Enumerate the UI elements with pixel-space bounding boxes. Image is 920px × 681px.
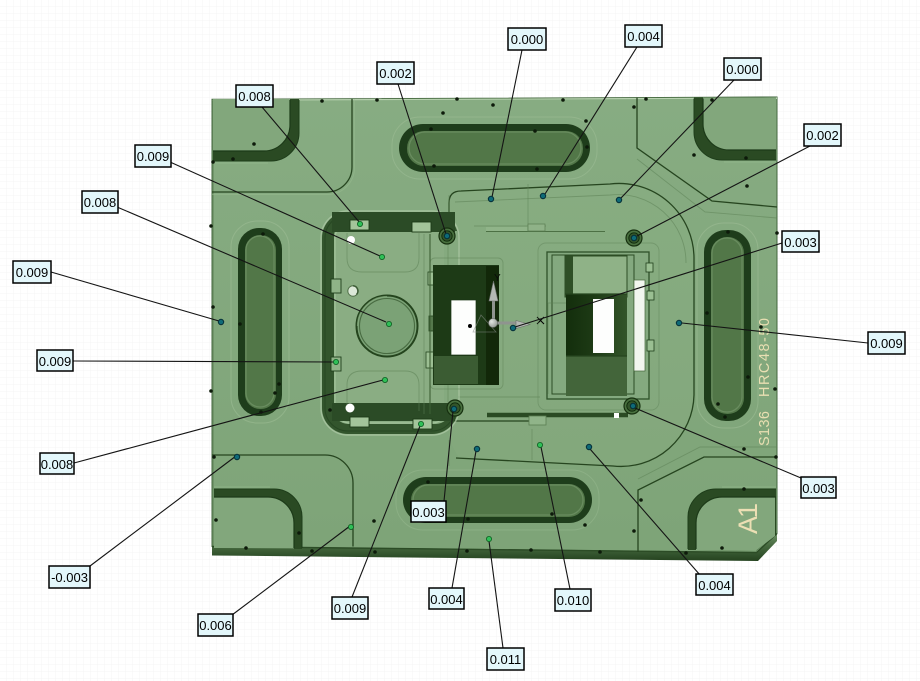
svg-text:A1: A1 [733,503,763,534]
svg-text:HRC48-50: HRC48-50 [757,318,773,397]
svg-text:0.010: 0.010 [557,593,590,608]
svg-text:0.002: 0.002 [806,128,839,143]
svg-text:0.004: 0.004 [430,592,463,607]
svg-text:0.004: 0.004 [627,29,660,44]
svg-text:0.008: 0.008 [238,89,271,104]
svg-text:0.008: 0.008 [41,457,74,472]
svg-text:0.000: 0.000 [511,32,544,47]
svg-text:S136: S136 [757,411,773,446]
svg-text:0.009: 0.009 [137,149,170,164]
svg-text:0.008: 0.008 [84,195,117,210]
svg-text:-0.003: -0.003 [51,570,88,585]
svg-text:0.009: 0.009 [334,601,367,616]
svg-text:0.004: 0.004 [698,578,731,593]
svg-text:0.000: 0.000 [726,62,759,77]
svg-text:0.003: 0.003 [412,505,445,520]
svg-text:0.003: 0.003 [802,481,835,496]
svg-text:0.009: 0.009 [16,265,49,280]
svg-text:0.006: 0.006 [199,618,232,633]
svg-text:0.003: 0.003 [784,235,817,250]
svg-text:0.009: 0.009 [870,336,903,351]
svg-text:Y: Y [494,273,501,284]
svg-text:0.009: 0.009 [39,354,72,369]
svg-text:0.002: 0.002 [379,66,412,81]
svg-text:0.011: 0.011 [490,652,522,667]
